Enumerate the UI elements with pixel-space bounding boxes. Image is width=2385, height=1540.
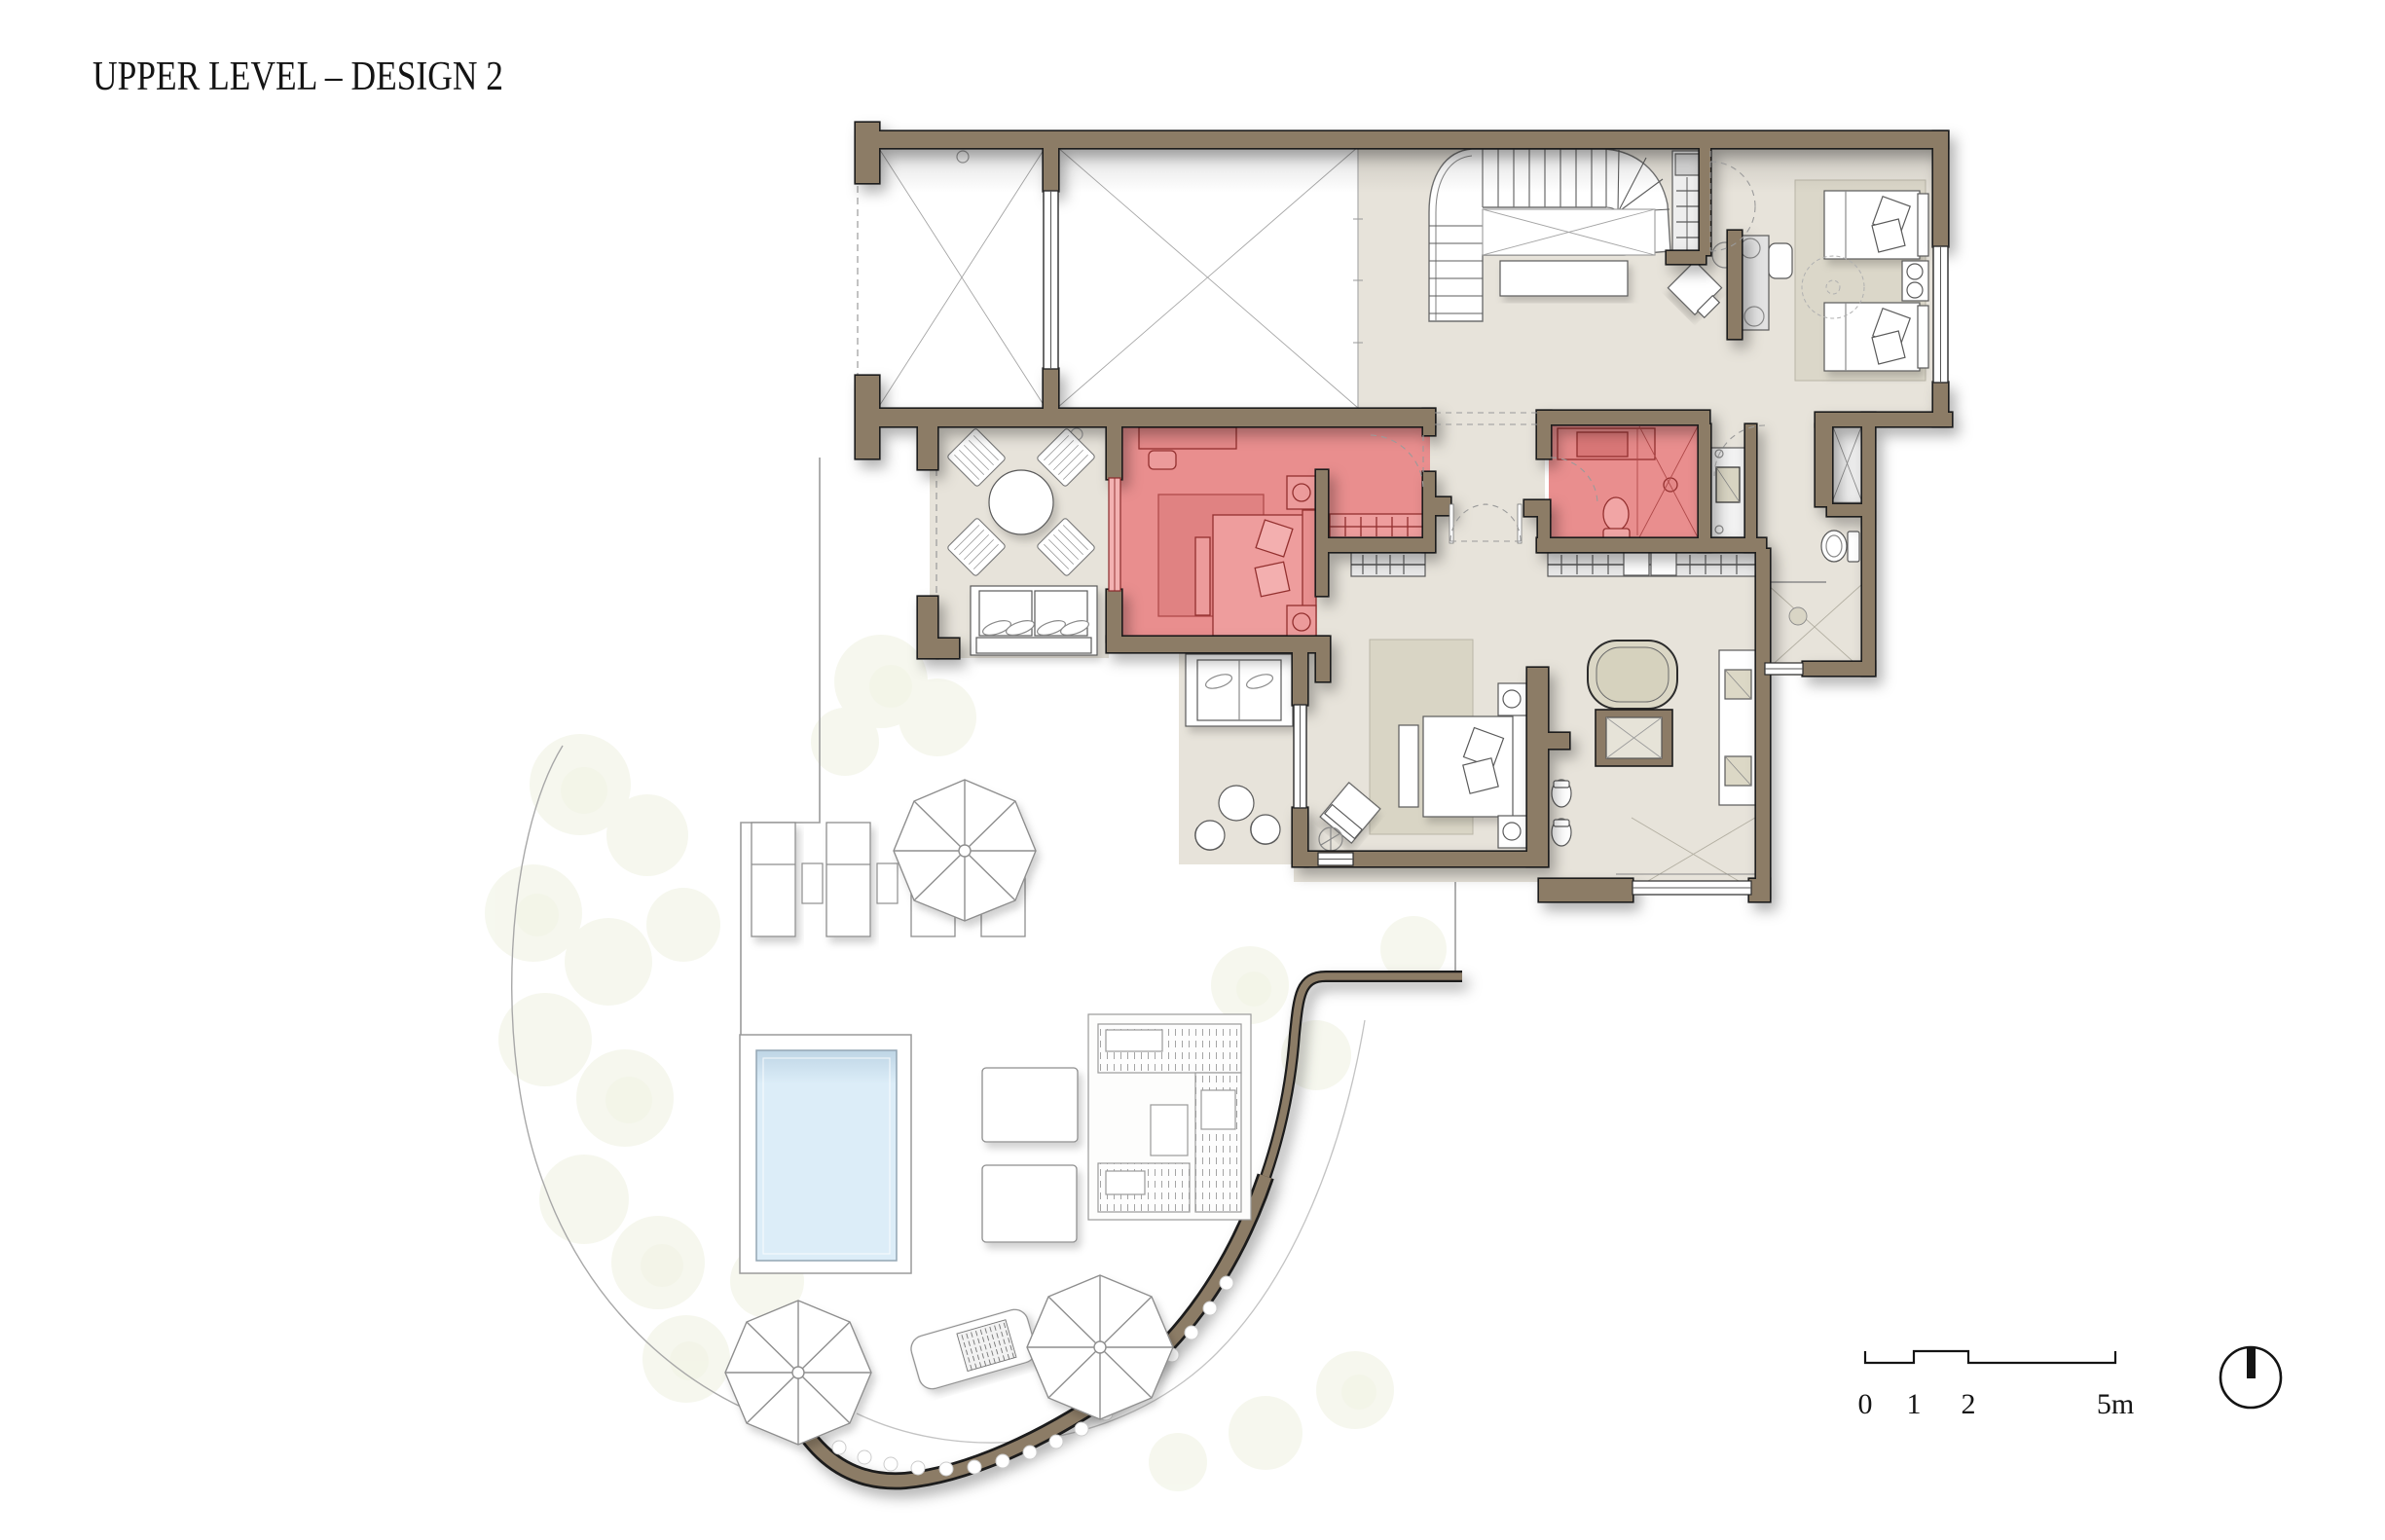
svg-text:0: 0 bbox=[1858, 1388, 1873, 1420]
svg-text:UPPER LEVEL – DESIGN 2: UPPER LEVEL – DESIGN 2 bbox=[92, 55, 503, 99]
svg-text:5m: 5m bbox=[2097, 1388, 2134, 1420]
svg-text:1: 1 bbox=[1907, 1388, 1922, 1420]
svg-text:2: 2 bbox=[1962, 1388, 1976, 1420]
